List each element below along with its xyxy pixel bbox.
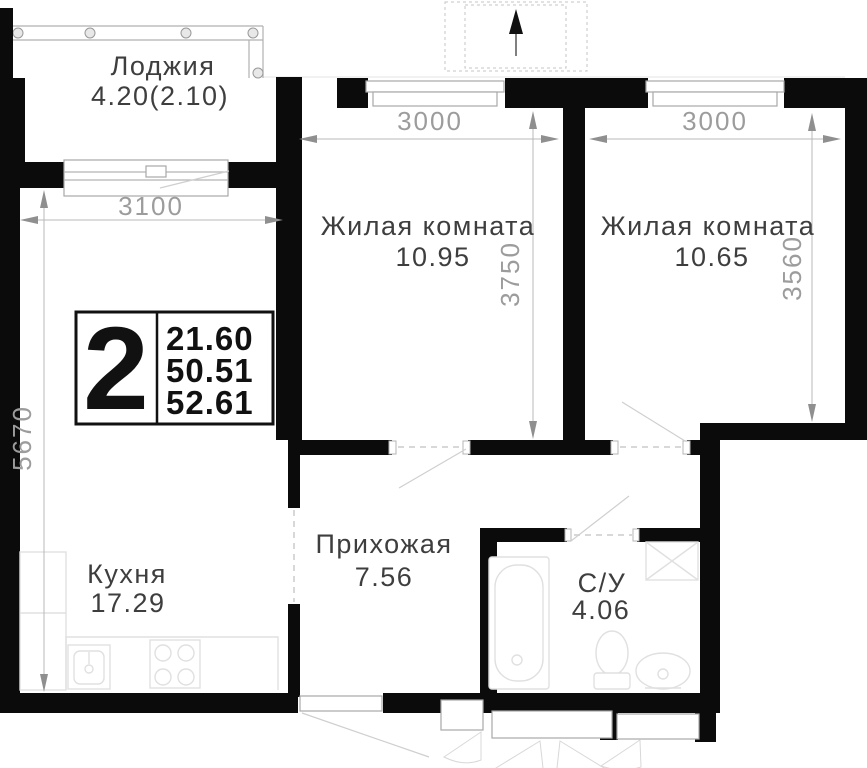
wall-bathroom-top-right <box>637 528 700 542</box>
area-kitchen: 17.29 <box>90 588 165 618</box>
entrance-door-frame <box>300 696 382 711</box>
dim-living2-height: 3560 <box>777 235 807 301</box>
label-loggia: Лоджия <box>111 51 216 81</box>
floor-plan: 3100 5670 3000 3750 3000 3560 Лоджия 4.2… <box>0 0 867 768</box>
window-room1-inner <box>373 92 497 106</box>
wall-kitchen-hall-lower <box>288 604 300 697</box>
dim-loggia-width: 3100 <box>118 191 184 221</box>
wall-bathroom-top-left <box>480 528 567 542</box>
glazing-joint-icon <box>253 68 263 78</box>
area-living1: 10.95 <box>395 242 470 272</box>
north-arrow <box>445 2 587 71</box>
dim-left-height: 5670 <box>7 405 37 471</box>
dim-living2-width: 3000 <box>682 106 748 136</box>
wall-room2-south <box>700 423 867 440</box>
exterior-door-box <box>492 711 612 738</box>
area-loggia: 4.20(2.10) <box>91 81 229 111</box>
kitchen-counter-left <box>20 552 66 690</box>
label-hallway: Прихожая <box>315 529 452 559</box>
wall-bottom-right <box>383 693 720 713</box>
wall-top-pier-1 <box>337 78 368 108</box>
wall-kitchen-room1-divider <box>276 77 302 440</box>
exterior-door-box <box>617 714 699 739</box>
label-bathroom: С/У <box>578 568 627 598</box>
label-kitchen: Кухня <box>87 559 167 589</box>
exterior-door-box <box>441 700 483 730</box>
glazing-joint-icon <box>248 28 258 38</box>
window-room1-outer <box>366 81 504 92</box>
wall-loggia-left-upper <box>0 8 13 78</box>
area-living2: 10.65 <box>674 242 749 272</box>
badge-area-3: 52.61 <box>166 384 254 421</box>
toilet-tank <box>594 673 630 689</box>
wall-top-pier-2 <box>505 78 648 108</box>
wash-basin-icon <box>636 653 690 689</box>
window-room2-inner <box>653 92 777 106</box>
wall-rooms-divider <box>563 108 585 440</box>
glazing-joint-icon <box>181 28 191 38</box>
exterior-door-fan <box>601 740 641 768</box>
up-arrow-icon <box>509 9 523 34</box>
door-room1-swing <box>399 449 466 488</box>
dim-living1-width: 3000 <box>397 106 463 136</box>
entrance-door-swing <box>302 713 429 757</box>
door-room2-swing <box>622 402 685 441</box>
exterior-door-fan <box>444 732 481 763</box>
floor-plan-svg: 3100 5670 3000 3750 3000 3560 Лоджия 4.2… <box>0 0 867 768</box>
glazing-joint-icon <box>13 28 23 38</box>
apartment-badge: 2 21.60 50.51 52.61 <box>76 303 273 435</box>
window-room2-outer <box>646 81 784 92</box>
area-bathroom: 4.06 <box>572 595 631 625</box>
balcony-door-handle <box>146 166 166 177</box>
wall-top-pier-3 <box>784 78 867 108</box>
exterior-door-fan <box>496 741 543 768</box>
dim-living1-height: 3750 <box>495 241 525 307</box>
wall-right <box>845 108 867 440</box>
toilet-icon <box>596 631 628 675</box>
area-hallway: 7.56 <box>355 562 414 592</box>
wall-room1-bottom-right <box>468 440 613 455</box>
glazing-joint-icon <box>85 28 95 38</box>
wall-kitchen-hall-upper <box>288 440 300 508</box>
label-living2: Жилая комната <box>601 211 816 241</box>
wall-bathroom-right <box>700 440 720 712</box>
wall-bottom-left <box>0 693 298 713</box>
exterior-door-fan <box>557 741 604 768</box>
wall-loggia-bottom-right <box>225 162 282 188</box>
badge-room-count: 2 <box>83 303 149 435</box>
wall-room1-bottom-left <box>300 440 392 455</box>
label-living1: Жилая комната <box>321 211 536 241</box>
